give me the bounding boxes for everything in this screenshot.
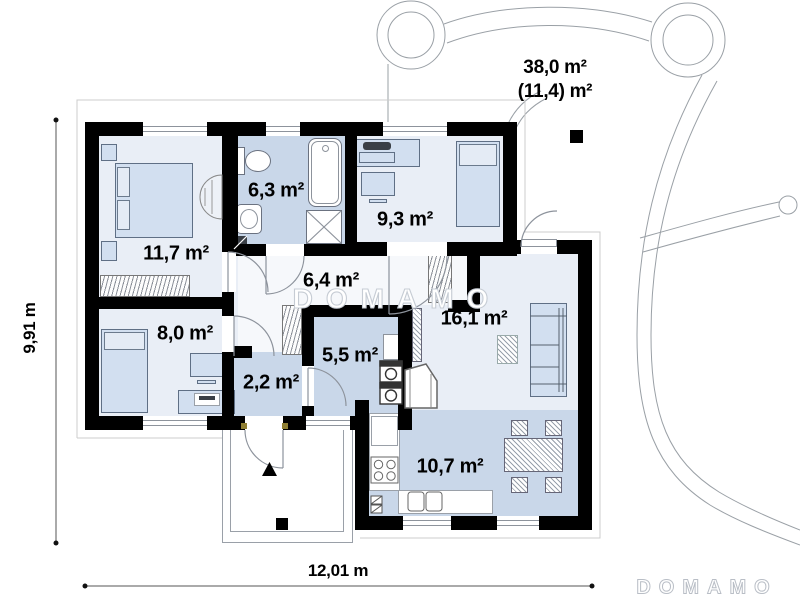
window [143,122,207,136]
wall [355,516,592,530]
wardrobe [100,275,190,297]
room-label-vestibule: 2,2 m² [243,372,299,395]
room-label-utility: 5,5 m² [322,345,378,368]
nightstand [101,241,117,261]
wall [234,346,252,358]
tree-icon [651,3,725,77]
kitchen-counter-bottom [398,490,493,514]
window [383,122,447,136]
wall [398,305,412,430]
watermark: DOMAMO [293,283,502,315]
fridge [371,416,398,446]
window [497,516,539,530]
floor-plan-canvas: 11,7 m² 6,3 m² 9,3 m² 6,4 m² 8,0 m² 5,5 … [0,0,800,605]
room-label-kitchen-dining: 10,7 m² [417,456,484,479]
sofa [530,303,567,397]
printer-icon [363,142,391,150]
room-label-bedroom-main: 11,7 m² [143,243,209,266]
entrance-door-opening [245,416,283,430]
chimney [412,308,422,362]
door-opening [302,366,314,406]
door-jamb [241,423,247,429]
wall [578,240,592,530]
nightstand [101,144,117,161]
window [306,416,350,430]
door-opening [387,242,447,256]
shower-tray [306,210,342,244]
pillow [117,200,130,230]
terrace-net-area-label: (11,4) m² [518,81,592,103]
watermark-corner: DOMAMO [636,577,777,600]
wall [345,136,357,242]
wall [503,122,517,256]
depth-dimension-label: 9,91 m [20,302,40,353]
monitor-stand [369,199,387,203]
chair [511,477,528,493]
wall [85,122,99,430]
bathtub-drain [322,145,329,152]
window [266,122,300,136]
door-opening [222,316,234,352]
window [403,516,451,530]
washbasin-bowl [240,209,258,229]
room-label-bedroom-2: 9,3 m² [377,209,433,232]
porch-post [276,518,288,530]
door-opening [266,244,304,256]
path-end-icon [779,196,797,214]
door-opening [222,252,236,292]
wall [99,297,222,309]
toilet-bowl [245,150,271,172]
pillow [104,332,145,350]
pillow [459,144,497,166]
width-dimension-label: 12,01 m [308,561,368,581]
monitor [361,172,395,196]
rug [497,335,518,364]
chair [545,477,562,493]
door-jamb [282,423,288,429]
printer-icon [199,396,215,400]
column-marker [570,130,583,143]
wall [222,136,238,256]
monitor [190,353,223,377]
terrace-area-label: 38,0 m² [523,57,586,79]
room-label-bedroom-3: 8,0 m² [157,323,213,346]
printer-base [359,152,395,163]
dining-table [504,438,563,472]
tree-icon [377,1,445,69]
terrace-door-leaf [521,239,557,247]
monitor-stand [197,380,216,384]
pillow [117,167,130,197]
chair [511,420,528,436]
room-label-bathroom: 6,3 m² [248,180,304,203]
window [143,416,207,430]
chair [545,420,562,436]
wall [355,400,369,530]
entrance-porch-inner [230,430,344,532]
